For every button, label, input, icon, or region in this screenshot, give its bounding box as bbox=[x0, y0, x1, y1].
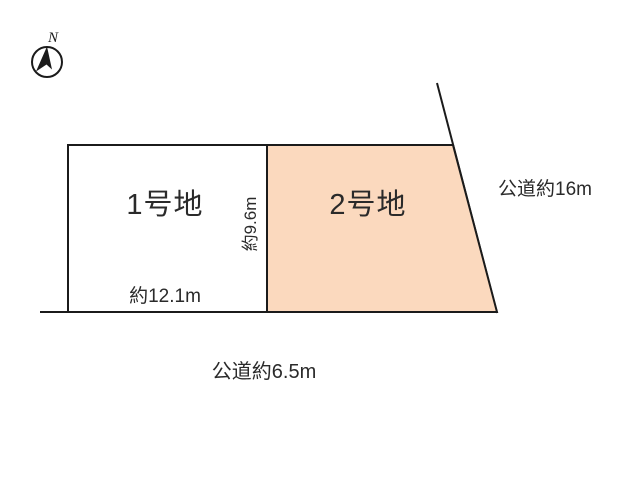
diagram-canvas bbox=[0, 0, 643, 500]
road-bottom-label: 公道約6.5m bbox=[194, 361, 334, 384]
north-label: N bbox=[48, 31, 58, 46]
lot-layout-diagram: N 1号地 2号地 約9.6m 約12.1m 公道約16m 公道約6.5m bbox=[0, 0, 643, 500]
road-right-label: 公道約16m bbox=[498, 178, 592, 201]
lot-1-frontage-dimension: 約12.1m bbox=[95, 286, 235, 308]
lot-2-label: 2号地 bbox=[298, 188, 438, 222]
lot-1-label: 1号地 bbox=[95, 188, 235, 222]
lot-2-shape bbox=[267, 145, 497, 312]
compass-icon bbox=[32, 47, 62, 78]
lot-1-depth-dimension: 約9.6m bbox=[241, 182, 261, 266]
